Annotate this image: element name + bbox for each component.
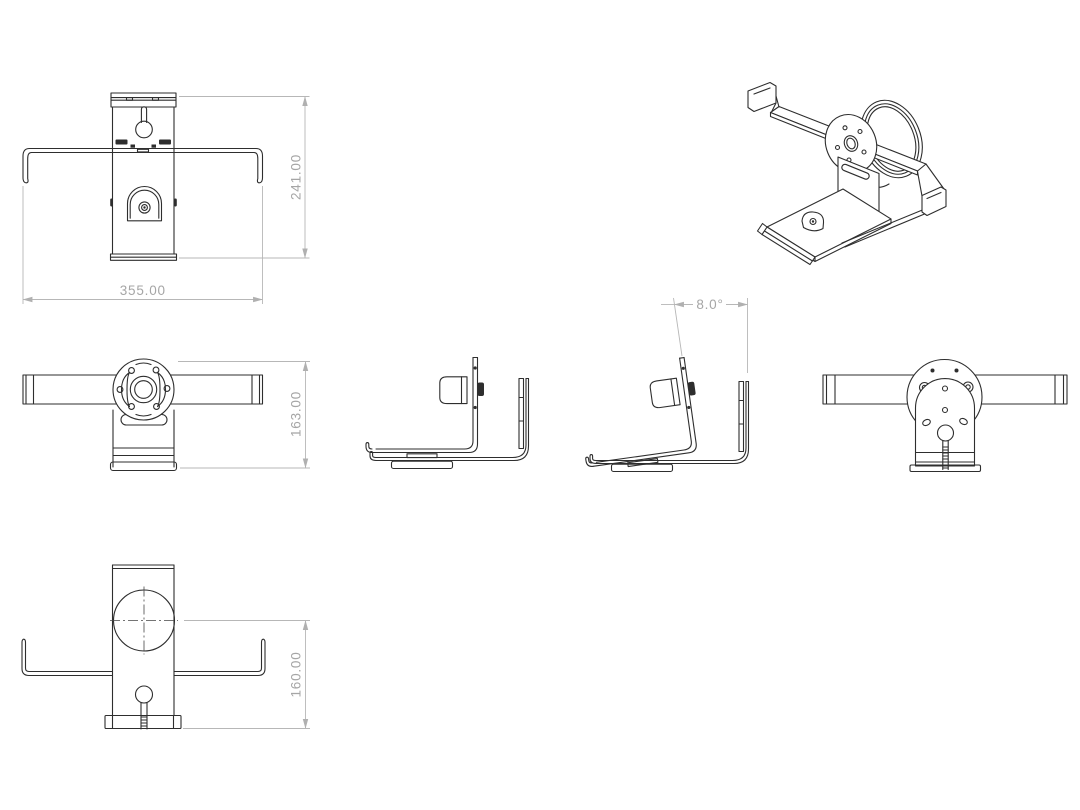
cross-bar-bottom bbox=[22, 639, 265, 675]
dim-text-355: 355.00 bbox=[120, 283, 166, 298]
dim-text-8deg: 8.0° bbox=[696, 297, 723, 312]
right-hook bbox=[254, 149, 263, 183]
isometric-view bbox=[748, 83, 946, 265]
dim-text-163: 163.00 bbox=[289, 391, 304, 437]
rear-view bbox=[823, 360, 1067, 472]
iso-right-hook bbox=[918, 164, 947, 216]
front-view: 163.00 bbox=[23, 359, 310, 471]
keyhole-screw bbox=[136, 686, 153, 729]
rubber-pads bbox=[116, 140, 172, 148]
right-hook-bottom bbox=[258, 639, 265, 675]
keyhole-slot bbox=[136, 107, 153, 138]
top-plate bbox=[111, 93, 176, 107]
side-view bbox=[366, 358, 529, 469]
bottom-plate bbox=[111, 254, 177, 260]
base-strip bbox=[111, 462, 177, 471]
top-view: 241.00 355.00 bbox=[23, 93, 310, 304]
pivot-disc bbox=[113, 359, 174, 420]
dim-text-241: 241.00 bbox=[289, 154, 304, 200]
left-hook bbox=[23, 149, 32, 183]
bottom-view: 160.00 bbox=[22, 565, 310, 729]
pole-circle bbox=[110, 587, 178, 655]
dome-emboss bbox=[128, 187, 162, 221]
technical-drawing-canvas: 241.00 355.00 bbox=[0, 0, 1080, 810]
dim-width-355: 355.00 bbox=[23, 186, 263, 304]
dim-height-241: 241.00 bbox=[179, 97, 310, 259]
left-hook-bottom bbox=[22, 639, 29, 675]
dim-height-160: 160.00 bbox=[183, 621, 310, 729]
dim-height-163: 163.00 bbox=[178, 362, 310, 469]
side-view-tilted: 8.0° bbox=[574, 297, 749, 472]
column-body bbox=[113, 107, 175, 254]
dim-text-160: 160.00 bbox=[289, 651, 304, 697]
drawing-sheet: 241.00 355.00 bbox=[0, 0, 1080, 810]
cross-bar bbox=[23, 149, 263, 183]
iso-left-hook bbox=[748, 83, 779, 112]
column-bottom bbox=[113, 565, 175, 716]
dim-angle-8: 8.0° bbox=[661, 297, 748, 373]
